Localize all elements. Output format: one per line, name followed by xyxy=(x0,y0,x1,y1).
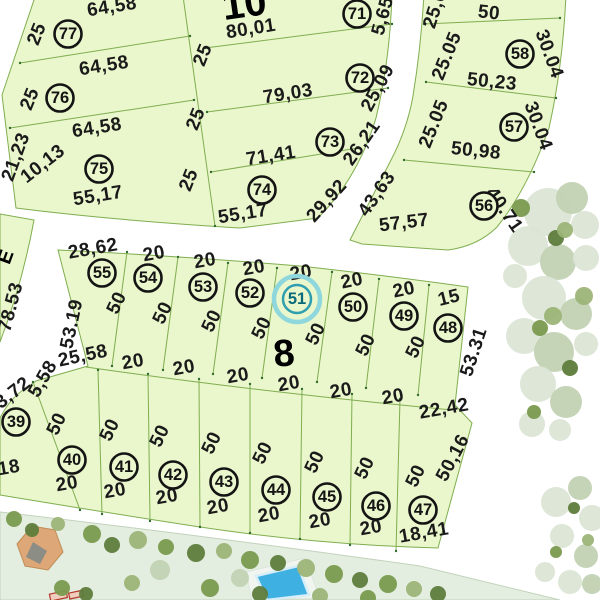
tree-icon xyxy=(550,546,562,558)
lot-marker[interactable]: 71 xyxy=(344,1,371,28)
lot-marker[interactable]: 41 xyxy=(111,454,138,481)
lot-marker[interactable]: 58 xyxy=(507,41,534,68)
vertex-dot xyxy=(19,62,21,64)
lot-marker[interactable]: 44 xyxy=(263,477,290,504)
lot-number-label: 75 xyxy=(90,160,108,178)
lot-number-label: 77 xyxy=(59,25,77,43)
lot-marker[interactable]: 49 xyxy=(391,303,418,330)
vertex-dot xyxy=(210,171,212,173)
tree-icon xyxy=(124,575,140,591)
vertex-dot xyxy=(212,373,214,375)
vertex-dot xyxy=(97,369,99,371)
lot-marker[interactable]: 74 xyxy=(249,177,276,204)
tree-icon xyxy=(216,543,232,559)
tree-icon xyxy=(231,569,249,587)
lot-marker[interactable]: 57 xyxy=(501,114,528,141)
lot-marker[interactable]: 54 xyxy=(135,265,162,292)
dimension-label: 20 xyxy=(171,356,196,381)
vertex-dot xyxy=(9,127,11,129)
vertex-dot xyxy=(193,99,195,101)
tree-icon xyxy=(550,386,582,418)
vertex-dot xyxy=(555,97,557,99)
lot-number-label: 47 xyxy=(414,501,432,519)
dimension-label: 50 xyxy=(477,1,501,24)
lot-marker[interactable]: 55 xyxy=(89,260,116,287)
tree-icon xyxy=(556,182,588,214)
tree-icon xyxy=(568,476,592,500)
dimension-label: 20 xyxy=(192,249,217,274)
vertex-dot xyxy=(331,271,333,273)
tree-icon xyxy=(562,360,578,376)
lot-marker[interactable]: 75 xyxy=(86,156,113,183)
tree-icon xyxy=(503,264,527,288)
lot-number-label: 53 xyxy=(194,278,212,296)
dimension-label: 20 xyxy=(205,495,230,520)
tree-icon xyxy=(6,511,22,527)
dimension-label: 20 xyxy=(120,350,145,375)
block-8-number: 8 xyxy=(272,332,297,376)
vertex-dot xyxy=(365,387,367,389)
tree-icon xyxy=(550,524,574,548)
lot-number-label: 44 xyxy=(267,481,286,499)
tree-icon xyxy=(270,555,286,571)
tree-icon xyxy=(571,211,599,239)
vertex-dot xyxy=(101,513,103,515)
lot-number-label: 74 xyxy=(253,181,272,199)
vertex-dot xyxy=(428,284,430,286)
lot-number-label: 56 xyxy=(475,197,493,215)
dimension-label: 20 xyxy=(256,503,281,528)
vertex-dot xyxy=(378,278,380,280)
tree-icon xyxy=(532,320,548,336)
dimension-label: 20 xyxy=(380,385,405,410)
lot-number-label: 72 xyxy=(351,69,369,87)
lot-marker[interactable]: 39 xyxy=(3,409,30,436)
lot-number-label: 52 xyxy=(241,284,259,302)
tree-icon xyxy=(575,287,593,305)
tree-icon xyxy=(129,531,147,549)
tree-icon xyxy=(549,419,571,441)
tree-icon xyxy=(54,580,70,596)
lot-number-label: 43 xyxy=(215,473,233,491)
tree-icon xyxy=(150,560,170,580)
vertex-dot xyxy=(261,377,263,379)
lot-number-label: 73 xyxy=(321,133,339,151)
lot-marker[interactable]: 45 xyxy=(314,484,341,511)
lot-marker[interactable]: 42 xyxy=(160,462,187,489)
tree-icon xyxy=(325,565,343,583)
lot-number-label: 58 xyxy=(511,45,529,63)
lot-marker[interactable]: 53 xyxy=(190,274,217,301)
lot-number-label: 50 xyxy=(344,298,362,316)
tree-icon xyxy=(573,245,599,271)
vertex-dot xyxy=(299,538,301,540)
lot-marker[interactable]: 48 xyxy=(435,315,462,342)
tree-icon xyxy=(379,575,397,593)
dimension-label: 20 xyxy=(307,509,332,534)
tree-icon xyxy=(574,544,598,568)
vertex-dot xyxy=(227,262,229,264)
lot-marker[interactable]: 76 xyxy=(47,85,74,112)
lot-number-label: 42 xyxy=(164,466,182,484)
vertex-dot xyxy=(111,365,113,367)
lot-marker[interactable]: 77 xyxy=(55,21,82,48)
tree-icon xyxy=(158,539,174,555)
tree-icon xyxy=(406,581,422,597)
vertex-dot xyxy=(276,267,278,269)
vertex-dot xyxy=(147,373,149,375)
lot-number-label: 49 xyxy=(395,307,413,325)
selected-lot-number-label: 51 xyxy=(288,290,306,308)
vertex-dot xyxy=(149,520,151,522)
lot-number-label: 76 xyxy=(51,89,69,107)
tree-icon xyxy=(520,366,556,402)
tree-icon xyxy=(297,559,315,577)
tree-icon xyxy=(187,544,205,562)
vertex-dot xyxy=(198,378,200,380)
lot-number-label: 46 xyxy=(367,497,385,515)
tree-icon xyxy=(352,572,368,588)
tree-icon xyxy=(25,523,39,537)
lot-number-label: 40 xyxy=(63,451,81,469)
lot-marker[interactable]: 50 xyxy=(340,294,367,321)
lot-marker[interactable]: 46 xyxy=(363,493,390,520)
vertex-dot xyxy=(417,394,419,396)
vertex-dot xyxy=(79,509,81,511)
tree-icon xyxy=(51,517,65,531)
vertex-dot xyxy=(126,251,128,253)
vertex-dot xyxy=(214,225,216,227)
lot-marker[interactable]: 47 xyxy=(410,497,437,524)
tree-icon xyxy=(582,534,594,546)
lot-number-label: 39 xyxy=(7,413,25,431)
vertex-dot xyxy=(395,550,397,552)
tree-icon xyxy=(535,562,555,582)
tree-icon xyxy=(568,502,580,514)
vertex-dot xyxy=(533,171,535,173)
vertex-dot xyxy=(199,526,201,528)
dimension-label: 20 xyxy=(225,364,250,389)
lot-marker[interactable]: 40 xyxy=(59,447,86,474)
vertex-dot xyxy=(177,256,179,258)
dimension-label: 20 xyxy=(241,256,266,281)
dimension-label: 20 xyxy=(141,242,166,267)
dimension-label: 18 xyxy=(0,456,22,481)
lot-number-label: 54 xyxy=(139,269,158,287)
lot-number-label: 45 xyxy=(318,488,336,506)
lot-marker[interactable]: 52 xyxy=(237,280,264,307)
lot-number-label: 71 xyxy=(348,5,366,23)
lot-number-label: 48 xyxy=(439,319,457,337)
vertex-dot xyxy=(559,17,561,19)
lot-number-label: 55 xyxy=(93,264,111,282)
tree-icon xyxy=(574,332,598,356)
dimension-label: 20 xyxy=(328,379,353,404)
lot-marker[interactable]: 56 xyxy=(471,193,498,220)
lot-number-label: 57 xyxy=(505,118,523,136)
lot-marker[interactable]: 72 xyxy=(347,65,374,92)
tree-icon xyxy=(104,537,120,553)
subdivision-map: 64,582564,582564,5821,2310,1355,17252525… xyxy=(0,0,600,600)
vertex-dot xyxy=(425,81,427,83)
vertex-dot xyxy=(403,159,405,161)
tree-icon xyxy=(558,570,582,594)
tree-icon xyxy=(540,244,576,280)
plat-map-screenshot: 64,582564,582564,5821,2310,1355,17252525… xyxy=(0,0,600,600)
vertex-dot xyxy=(349,544,351,546)
vertex-dot xyxy=(189,35,191,37)
tree-icon xyxy=(83,525,101,543)
lot-marker[interactable]: 43 xyxy=(211,469,238,496)
vertex-dot xyxy=(316,381,318,383)
tree-icon xyxy=(527,405,541,419)
lot-number-label: 41 xyxy=(115,458,133,476)
dimension-label: 20 xyxy=(54,472,79,497)
dimension-label: 20 xyxy=(102,479,127,504)
lot-marker[interactable]: 73 xyxy=(317,129,344,156)
tree-icon xyxy=(241,551,259,569)
tree-icon xyxy=(557,222,573,238)
tree-icon xyxy=(544,307,562,325)
tree-icon xyxy=(201,579,219,597)
vertex-dot xyxy=(162,369,164,371)
vertex-dot xyxy=(249,532,251,534)
tree-icon xyxy=(541,487,571,517)
